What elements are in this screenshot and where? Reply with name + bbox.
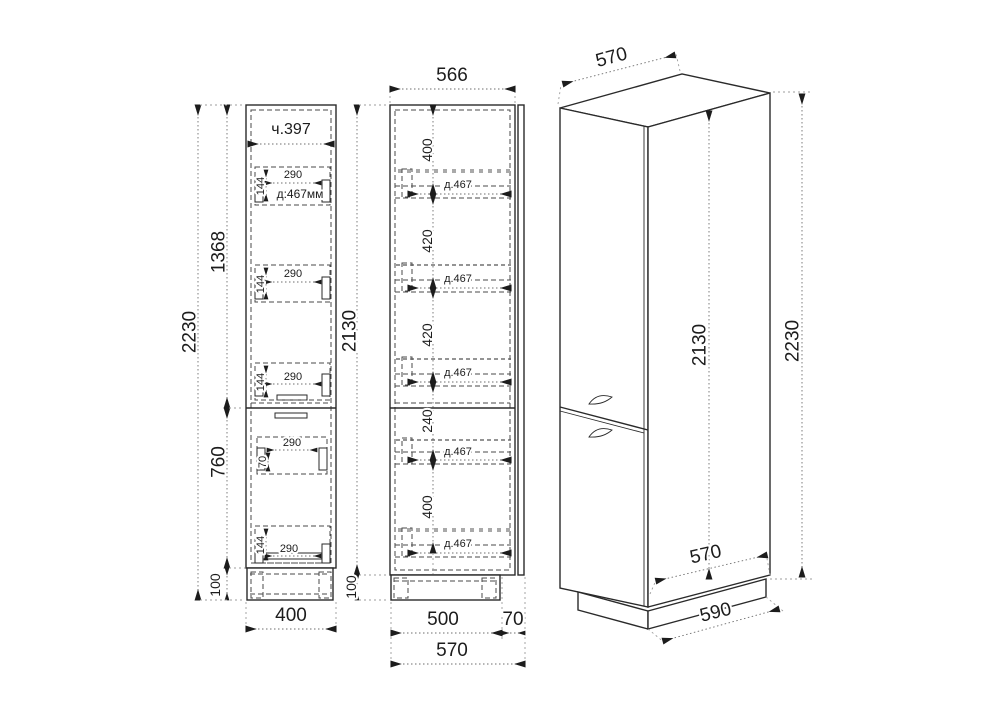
front-handle-bar-upper: [277, 395, 307, 400]
dim-upper-height: 1368: [209, 231, 230, 273]
front-plinth: [247, 568, 333, 600]
dim-spacing-1: 400: [419, 138, 435, 162]
iso-front-face: [560, 108, 648, 607]
dim-top-depth: 566: [436, 65, 468, 86]
dim-body-depth: 500: [427, 609, 459, 630]
dim-iso-body-height: 2130: [690, 324, 711, 366]
dim-bottom-width: 400: [275, 605, 307, 626]
dim-handle-width: 290: [280, 543, 298, 555]
dim-front-top-width: ч.397: [271, 121, 311, 138]
dim-spacing-4: 240: [419, 409, 435, 433]
dim-spacing-5: 400: [419, 495, 435, 519]
dim-total-depth: 570: [436, 640, 468, 661]
handle-bracket-right: [322, 374, 330, 396]
dim-lower-height: 760: [209, 446, 230, 478]
iso-view: 570 2130 2230 570 590: [558, 43, 812, 643]
dim-handle-width: 290: [284, 371, 302, 383]
cabinet-dimension-drawing: 290 144 д:467мм 290 144 290 144: [0, 0, 1000, 707]
ext-line: [648, 629, 665, 643]
dim-handle-height: 144: [255, 275, 267, 293]
handle-extra-label: д:467мм: [277, 187, 324, 201]
handle-bracket-right: [322, 544, 330, 563]
dim-shelf-depth: д.467: [444, 273, 472, 285]
side-view: д.467 д.467 д.467 д.467: [340, 65, 526, 667]
ext-line: [676, 54, 680, 71]
dim-iso-top-width: 570: [594, 43, 630, 71]
dim-body-height: 2130: [340, 310, 361, 352]
technical-drawing-page: 290 144 д:467мм 290 144 290 144: [0, 0, 1000, 707]
handle-bracket-right: [322, 277, 330, 299]
ext-line: [766, 597, 783, 611]
dim-plinth-height: 100: [343, 575, 359, 599]
dim-handle-width: 290: [283, 437, 301, 449]
dim-total-height: 2230: [180, 311, 201, 353]
dim-door-depth: 70: [502, 609, 523, 630]
dim-handle-height: 144: [255, 536, 267, 554]
dim-spacing-3: 420: [419, 323, 435, 347]
dim-spacing-2: 420: [419, 229, 435, 253]
front-handle-bar-lower: [275, 413, 307, 418]
dim-handle-width: 290: [284, 268, 302, 280]
dim-shelf-depth: д.467: [444, 446, 472, 458]
dim-shelf-depth: д.467: [444, 179, 472, 191]
side-cabinet-body: [390, 105, 515, 575]
dim-handle-height: 144: [255, 373, 267, 391]
dim-plinth-height: 100: [207, 573, 223, 597]
dim-handle-height: 70: [257, 456, 269, 468]
front-view: 290 144 д:467мм 290 144 290 144: [180, 105, 337, 632]
handle-bracket-right: [319, 448, 327, 470]
side-door-panel: [518, 105, 524, 575]
dim-shelf-depth: д.467: [444, 538, 472, 550]
side-plinth: [391, 575, 500, 600]
dim-iso-total-height: 2230: [783, 320, 804, 362]
dim-shelf-depth: д.467: [444, 367, 472, 379]
dim-handle-height: 144: [255, 177, 267, 195]
ext-line: [558, 85, 561, 104]
dim-handle-width: 290: [284, 169, 302, 181]
